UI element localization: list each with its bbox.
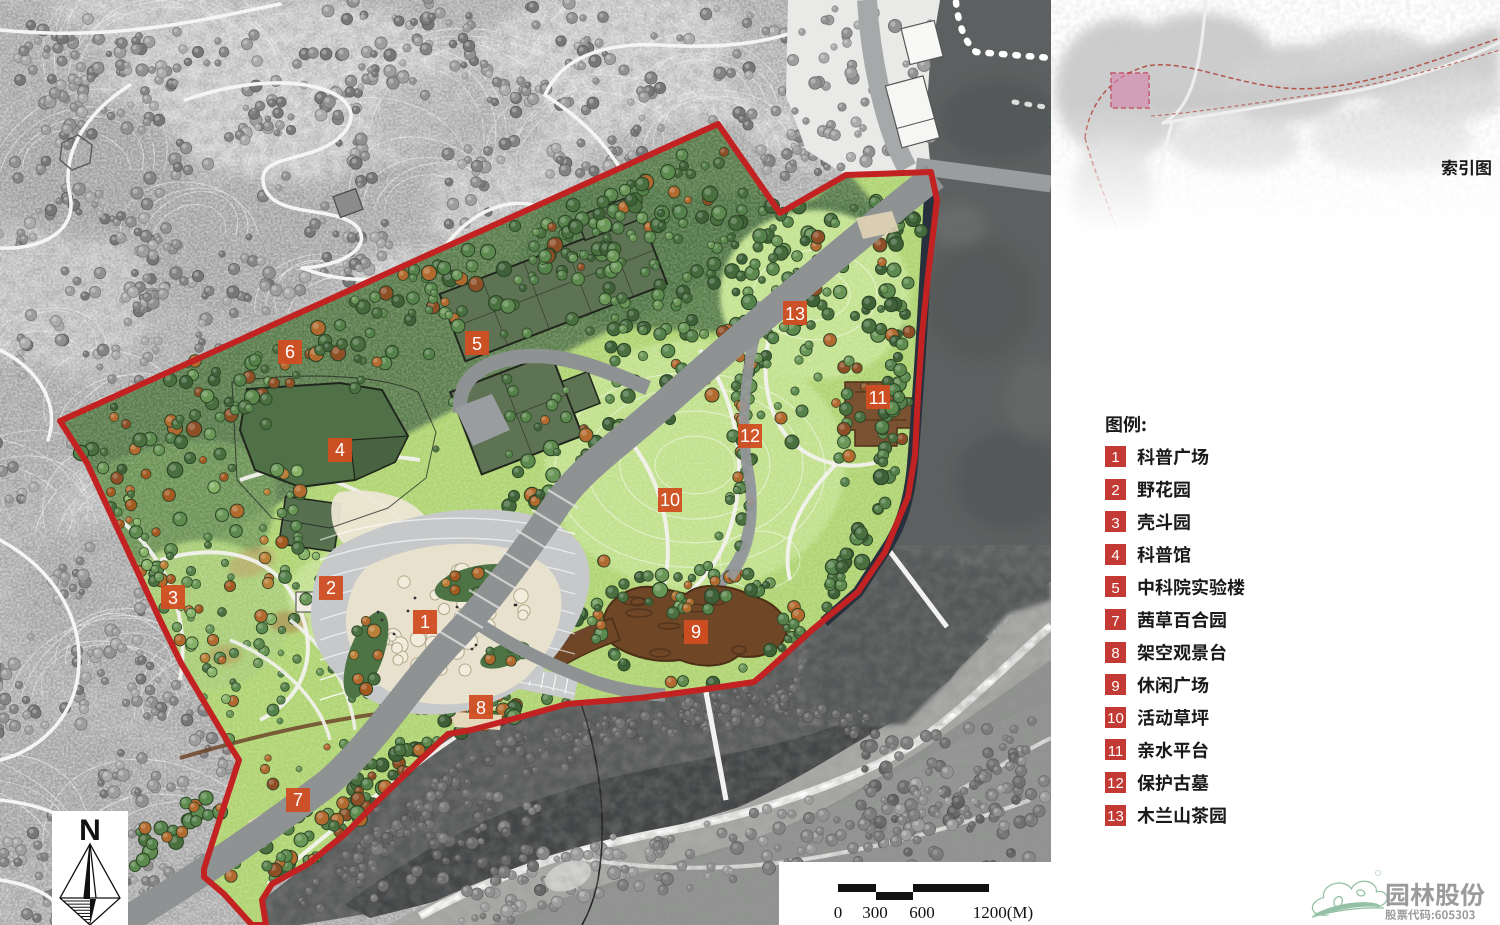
svg-text:11: 11 — [869, 388, 888, 408]
svg-text:13: 13 — [1107, 808, 1124, 825]
svg-text:8: 8 — [1111, 645, 1119, 662]
svg-text:9: 9 — [1111, 678, 1119, 695]
svg-text:1: 1 — [420, 612, 430, 632]
svg-text:3: 3 — [1111, 515, 1119, 532]
svg-text:12: 12 — [740, 426, 760, 446]
svg-text:1: 1 — [1111, 449, 1119, 466]
svg-text:7: 7 — [293, 790, 303, 810]
svg-text:6: 6 — [285, 342, 295, 362]
svg-text:8: 8 — [476, 698, 486, 718]
svg-text:1200(M): 1200(M) — [973, 903, 1033, 922]
svg-text:10: 10 — [1107, 710, 1124, 727]
svg-text:4: 4 — [335, 440, 345, 460]
svg-text:9: 9 — [691, 622, 701, 642]
svg-text:N: N — [79, 814, 101, 847]
svg-text:3: 3 — [168, 588, 178, 608]
svg-text:300: 300 — [862, 903, 888, 922]
svg-text:5: 5 — [472, 334, 482, 354]
svg-text:12: 12 — [1107, 775, 1124, 792]
svg-text:5: 5 — [1111, 580, 1119, 597]
svg-text:2: 2 — [326, 578, 336, 598]
svg-text:13: 13 — [785, 304, 805, 324]
svg-text:4: 4 — [1111, 547, 1119, 564]
svg-text:11: 11 — [1108, 743, 1124, 760]
svg-text:600: 600 — [909, 903, 935, 922]
svg-text:2: 2 — [1111, 482, 1119, 499]
svg-text:0: 0 — [834, 903, 843, 922]
svg-text:10: 10 — [660, 490, 680, 510]
svg-text:7: 7 — [1111, 613, 1119, 630]
